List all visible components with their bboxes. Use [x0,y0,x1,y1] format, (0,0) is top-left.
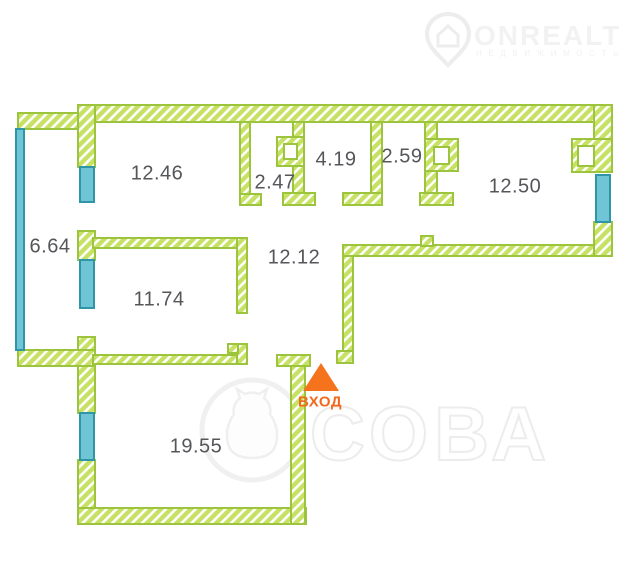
room-area-label-247: 2.47 [255,172,296,195]
entrance-arrow-up-icon [303,363,339,391]
room-area-label-419: 4.19 [316,149,357,172]
sova-watermark-text: СОВА [310,392,552,477]
entrance-label: ВХОД [298,394,342,411]
room-area-label-1174: 11.74 [133,289,184,312]
wall-room1246-right [240,122,250,205]
wall-corridor-right [343,256,353,363]
house-glyph [438,26,458,46]
room-area-label-1246: 12.46 [131,163,184,186]
room-area-label-1955: 19.55 [170,436,223,459]
wall-room1174-door-nub [228,344,238,353]
wall-room1246-right-foot [240,194,261,205]
floorplan-svg: ONREALT Н Е Д В И Ж И М О С Т Ь СОВА [0,0,630,580]
wall-corridor-right-foot [337,351,353,363]
onrealt-logo-watermark: ONREALT Н Е Д В И Ж И М О С Т Ь [427,14,621,65]
wall-room1174-top [93,238,247,248]
wall-right-lower [594,222,612,256]
room-area-label-664: 6.64 [30,236,71,259]
window-balcony-left [16,129,24,350]
wall-entrance-left-jamb [277,355,310,366]
wall-balcony-right-upper [78,105,95,167]
wall-corridor-top-right [343,245,612,256]
sova-watermark: СОВА [202,380,552,480]
wall-247-419-foot [283,193,315,205]
window-balcony-room1174 [80,260,94,308]
room-area-label-259: 2.59 [382,146,423,169]
owl-body [227,389,277,458]
vent-hole-2 [434,147,449,164]
window-room1250-right [596,175,610,222]
window-room1955-left [80,413,94,460]
wall-room1955-top [93,355,247,364]
window-balcony-room1246 [80,167,94,202]
wall-right-upper [594,105,612,141]
owl-in-circle-icon [202,380,302,480]
wall-top-main [78,105,612,122]
wall-balcony-right-lower [78,337,95,413]
wall-room1955-bottom [78,508,306,524]
wall-door-bump [421,236,433,246]
wall-balcony-bottom [18,350,95,366]
logo-brand-text: ONREALT [474,20,621,51]
vent-hole-3 [578,146,594,166]
wall-room1174-right [237,238,247,313]
wall-419-259-foot [343,193,382,205]
vent-hole-1 [284,144,297,159]
pin-outline [427,14,469,65]
room-area-label-1250: 12.50 [489,176,542,199]
location-pin-house-icon [427,14,469,65]
room-area-label-1212: 12.12 [268,247,321,270]
wall-room1955-right [291,366,305,524]
logo-tagline-text: Н Е Д В И Ж И М О С Т Ь [476,49,621,58]
floorplan-canvas: ONREALT Н Е Д В И Ж И М О С Т Ь СОВА [0,0,630,580]
wall-259-1250-foot [420,193,453,205]
